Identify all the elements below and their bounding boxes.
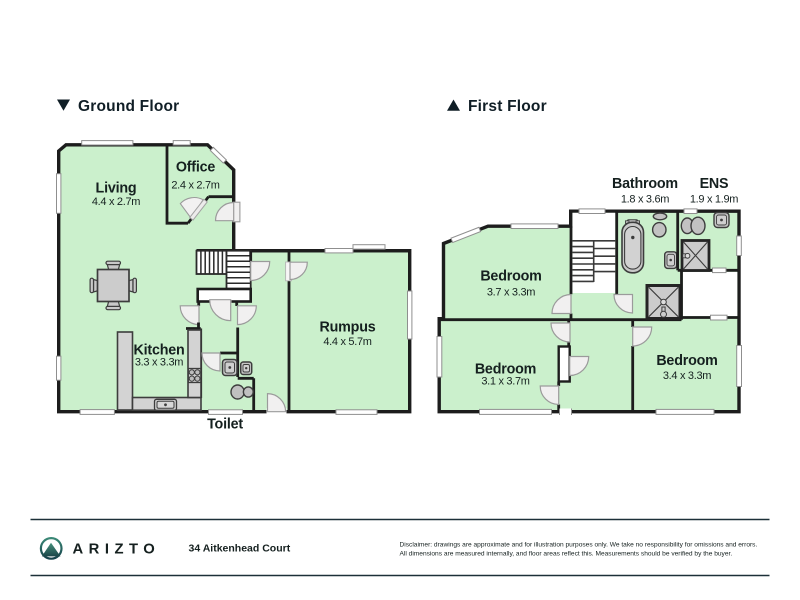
svg-text:Bathroom: Bathroom — [612, 176, 678, 192]
svg-text:Office: Office — [176, 160, 216, 176]
svg-text:3.4 x 3.3m: 3.4 x 3.3m — [663, 370, 711, 382]
svg-text:4.4 x 2.7m: 4.4 x 2.7m — [92, 196, 140, 208]
svg-text:Bedroom: Bedroom — [480, 269, 541, 285]
svg-text:Toilet: Toilet — [207, 417, 243, 433]
svg-text:1.8 x 3.6m: 1.8 x 3.6m — [621, 194, 669, 206]
svg-text:Living: Living — [96, 181, 137, 197]
svg-text:Disclaimer: drawings are appro: Disclaimer: drawings are approximate and… — [400, 542, 758, 549]
svg-text:ENS: ENS — [700, 176, 729, 192]
svg-text:34 Aitkenhead Court: 34 Aitkenhead Court — [189, 543, 291, 555]
svg-text:4.4 x 5.7m: 4.4 x 5.7m — [323, 336, 371, 348]
svg-text:3.7 x 3.3m: 3.7 x 3.3m — [487, 287, 535, 299]
svg-text:3.1 x 3.7m: 3.1 x 3.7m — [481, 376, 529, 388]
svg-text:3.3 x 3.3m: 3.3 x 3.3m — [135, 356, 183, 368]
svg-text:First Floor: First Floor — [468, 98, 547, 115]
svg-text:Rumpus: Rumpus — [320, 320, 376, 336]
svg-text:Ground Floor: Ground Floor — [78, 98, 179, 115]
svg-text:1.9 x 1.9m: 1.9 x 1.9m — [690, 194, 738, 206]
svg-text:All dimensions are measured in: All dimensions are measured internally, … — [400, 551, 733, 558]
svg-text:Bedroom: Bedroom — [656, 353, 717, 369]
svg-text:ARIZTO: ARIZTO — [73, 542, 161, 558]
svg-text:2.4 x 2.7m: 2.4 x 2.7m — [171, 180, 219, 192]
